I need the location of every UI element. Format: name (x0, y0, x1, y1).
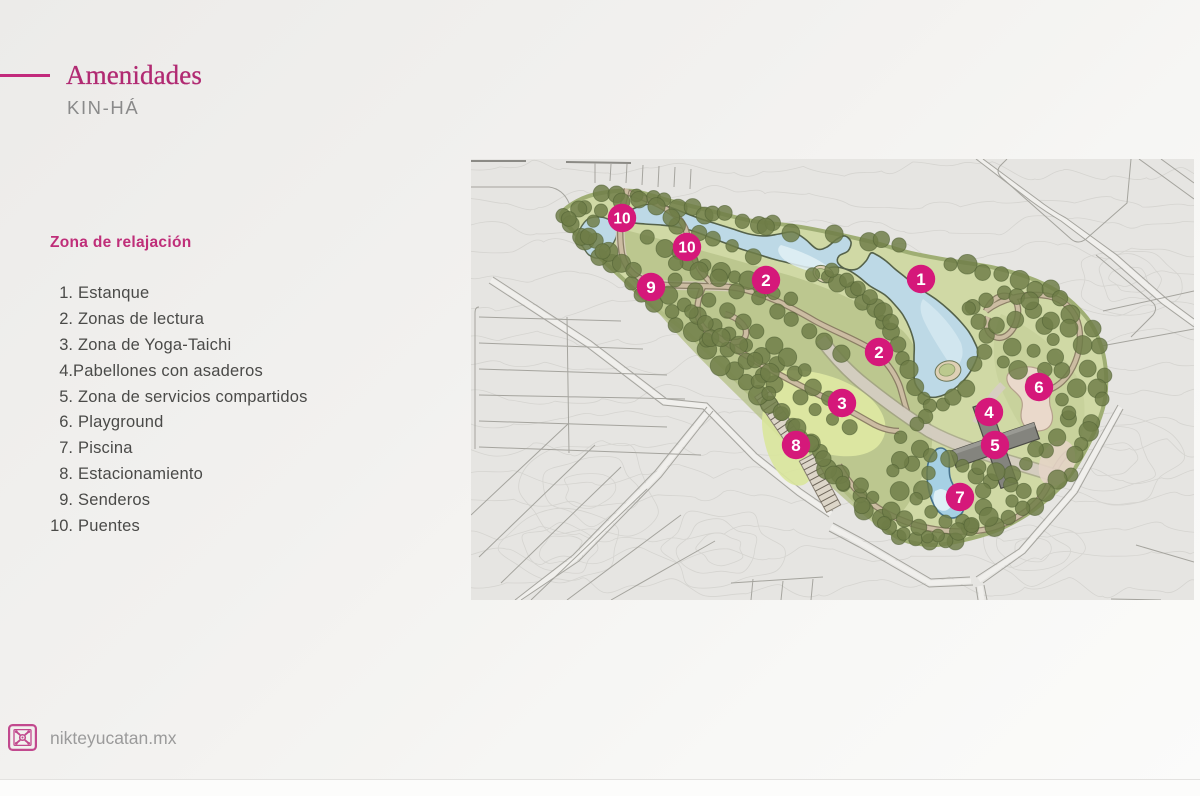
svg-text:3: 3 (837, 394, 846, 413)
svg-text:8: 8 (791, 436, 800, 455)
svg-text:10: 10 (678, 240, 695, 257)
svg-text:7: 7 (955, 488, 964, 507)
svg-text:10: 10 (613, 211, 630, 228)
svg-text:6: 6 (1034, 378, 1043, 397)
svg-text:9: 9 (646, 278, 655, 297)
svg-text:2: 2 (761, 271, 770, 290)
svg-text:2: 2 (874, 343, 883, 362)
svg-text:1: 1 (916, 270, 925, 289)
svg-text:4: 4 (984, 403, 994, 422)
svg-text:5: 5 (990, 436, 999, 455)
